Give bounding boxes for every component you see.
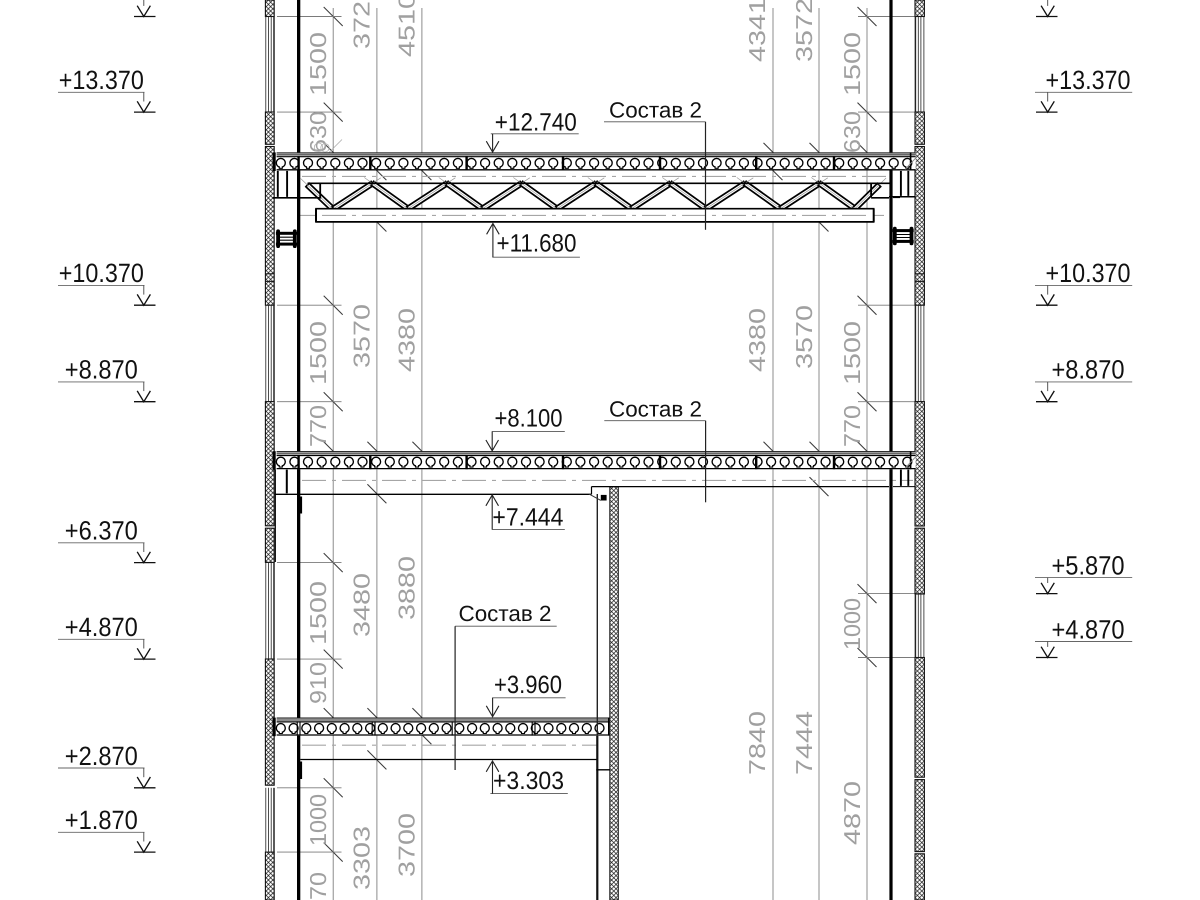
svg-text:+8.870: +8.870	[1052, 355, 1125, 385]
svg-text:630: 630	[305, 111, 331, 153]
svg-text:3480: 3480	[349, 573, 375, 637]
svg-text:+13.370: +13.370	[1046, 65, 1131, 95]
svg-text:+3.960: +3.960	[494, 671, 562, 699]
svg-text:+10.370: +10.370	[1046, 258, 1131, 288]
svg-text:4380: 4380	[394, 308, 420, 372]
svg-text:1000: 1000	[305, 794, 331, 846]
svg-text:Состав 2: Состав 2	[609, 97, 702, 122]
svg-text:4870: 4870	[839, 781, 865, 845]
svg-text:7444: 7444	[791, 711, 817, 775]
svg-text:3700: 3700	[394, 813, 420, 877]
svg-text:1500: 1500	[839, 321, 865, 385]
svg-text:3720: 3720	[349, 0, 375, 49]
svg-text:+8.100: +8.100	[495, 404, 563, 432]
svg-text:1500: 1500	[305, 32, 331, 96]
svg-text:+11.680: +11.680	[497, 230, 577, 258]
svg-text:3880: 3880	[394, 556, 420, 620]
svg-text:+1.870: +1.870	[65, 805, 138, 835]
svg-text:+5.870: +5.870	[1052, 550, 1125, 580]
svg-text:770: 770	[305, 872, 331, 900]
svg-text:4510: 4510	[394, 0, 420, 57]
svg-text:3570: 3570	[791, 305, 817, 369]
svg-text:3572: 3572	[791, 0, 817, 62]
svg-text:1500: 1500	[305, 581, 331, 645]
svg-text:+8.870: +8.870	[65, 355, 138, 385]
svg-text:4380: 4380	[744, 308, 770, 372]
svg-text:910: 910	[305, 662, 331, 704]
svg-text:+6.370: +6.370	[65, 516, 138, 546]
svg-text:+12.740: +12.740	[495, 109, 577, 137]
svg-text:Состав 2: Состав 2	[459, 601, 552, 626]
svg-text:7840: 7840	[744, 711, 770, 775]
svg-text:+4.870: +4.870	[1052, 614, 1125, 644]
svg-text:+7.444: +7.444	[492, 503, 563, 531]
svg-text:4341: 4341	[744, 0, 770, 62]
svg-text:+3.303: +3.303	[493, 767, 564, 795]
svg-text:630: 630	[839, 111, 865, 153]
svg-text:3570: 3570	[349, 304, 375, 368]
svg-text:Состав 2: Состав 2	[609, 397, 702, 422]
svg-text:770: 770	[305, 405, 331, 447]
svg-text:+2.870: +2.870	[65, 741, 138, 771]
svg-text:+4.870: +4.870	[65, 612, 138, 642]
svg-text:1000: 1000	[839, 598, 865, 650]
svg-text:+13.370: +13.370	[59, 65, 144, 95]
svg-text:1500: 1500	[305, 321, 331, 385]
svg-text:+10.370: +10.370	[59, 258, 144, 288]
svg-text:1500: 1500	[839, 32, 865, 96]
svg-text:3303: 3303	[349, 826, 375, 890]
svg-text:770: 770	[839, 405, 865, 447]
